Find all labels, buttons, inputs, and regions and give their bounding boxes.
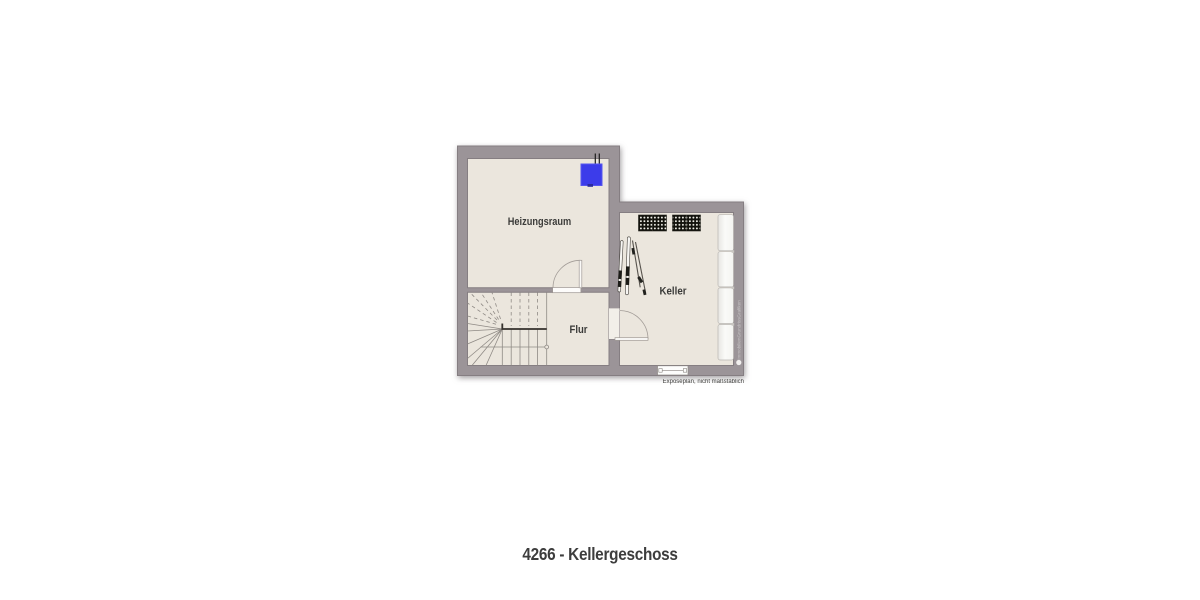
svg-text:Flur: Flur xyxy=(570,324,589,336)
svg-text:Heizungsraum: Heizungsraum xyxy=(508,216,572,228)
svg-text:Keller: Keller xyxy=(660,286,688,298)
svg-text:Exposéplan, nicht maßstäblich: Exposéplan, nicht maßstäblich xyxy=(663,379,744,385)
svg-text:ImmobilienGrundrissGrafiken: ImmobilienGrundrissGrafiken xyxy=(736,300,741,360)
